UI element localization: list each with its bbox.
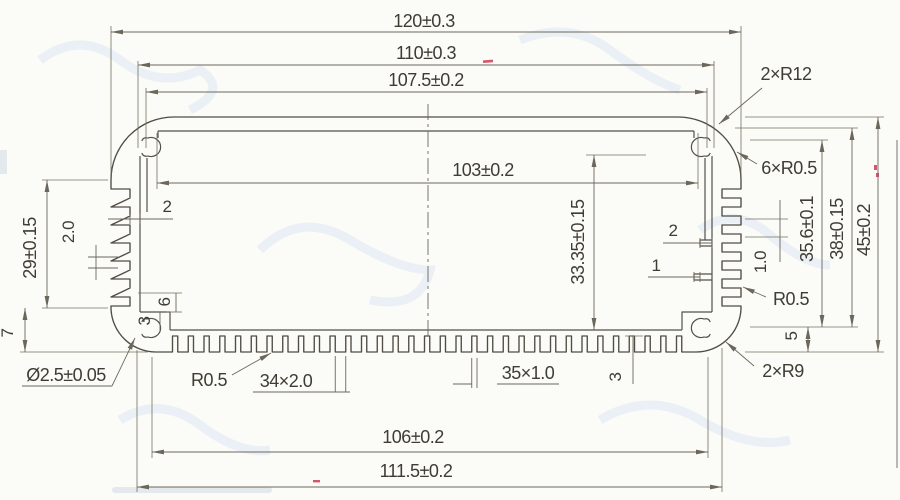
extrusion-profile-drawing: 120±0.3 110±0.3 107.5±0.2 103±0.2 106±0.…	[0, 0, 900, 500]
dim-width-103: 103±0.2	[452, 160, 514, 180]
dim-wall-1-right: 1	[652, 256, 661, 275]
callout-radius-r05-bottom: R0.5	[191, 370, 228, 390]
dim-width-107-5: 107.5±0.2	[388, 70, 464, 90]
screw-boss-top-left	[142, 138, 161, 157]
scan-smudge-edge	[0, 150, 7, 174]
dim-width-110: 110±0.3	[396, 43, 457, 63]
dim-base-fin-depth-3: 3	[606, 372, 625, 381]
dim-fin-thickness-2-0: 2.0	[59, 221, 78, 243]
dim-wall-2-left: 2	[163, 197, 172, 216]
dim-height-33-35: 33.35±0.15	[568, 199, 588, 284]
dim-screw-hole-diameter: Ø2.5±0.05	[26, 365, 106, 385]
leader-6xR0-5	[737, 152, 757, 164]
dim-height-5: 5	[782, 331, 801, 340]
leader-2xR12	[719, 88, 762, 124]
leader-2xR9	[726, 342, 754, 366]
dim-height-38: 38±0.15	[827, 198, 847, 260]
dim-gap-1-0: 1.0	[751, 251, 770, 273]
dim-height-35-6: 35.6±0.1	[797, 196, 817, 262]
dim-wall-2-right: 2	[669, 221, 678, 240]
extrusion-inner-walls	[140, 131, 712, 330]
scan-smudge	[112, 487, 272, 493]
leader-R0-5-right	[743, 287, 766, 297]
leader-hole	[112, 338, 135, 386]
dim-step-3-left: 3	[135, 316, 154, 325]
red-pen-marks	[313, 60, 879, 483]
dim-bottom-fin-teeth: 34×2.0	[260, 371, 313, 391]
dim-height-7: 7	[0, 328, 17, 337]
dim-height-45: 45±0.2	[854, 204, 874, 256]
dim-width-111-5: 111.5±0.2	[380, 461, 453, 481]
dim-bottom-fin-gaps: 35×1.0	[502, 363, 555, 383]
dim-overall-width: 120±0.3	[393, 11, 455, 31]
callout-radius-r05-right: R0.5	[773, 289, 810, 309]
dim-height-29: 29±0.15	[20, 217, 40, 279]
callout-corner-radius-r12: 2×R12	[760, 64, 812, 84]
screw-boss-bottom-right	[691, 319, 710, 338]
screw-bosses	[142, 138, 710, 338]
scanned-engineering-drawing: 120±0.3 110±0.3 107.5±0.2 103±0.2 106±0.…	[0, 0, 900, 500]
callout-corner-radius-r9: 2×R9	[762, 361, 804, 381]
dim-width-106: 106±0.2	[382, 427, 444, 447]
callout-fin-radius-6xr05: 6×R0.5	[761, 158, 817, 178]
extrusion-profile-outline	[111, 117, 741, 352]
dim-step-6-left: 6	[155, 297, 174, 306]
